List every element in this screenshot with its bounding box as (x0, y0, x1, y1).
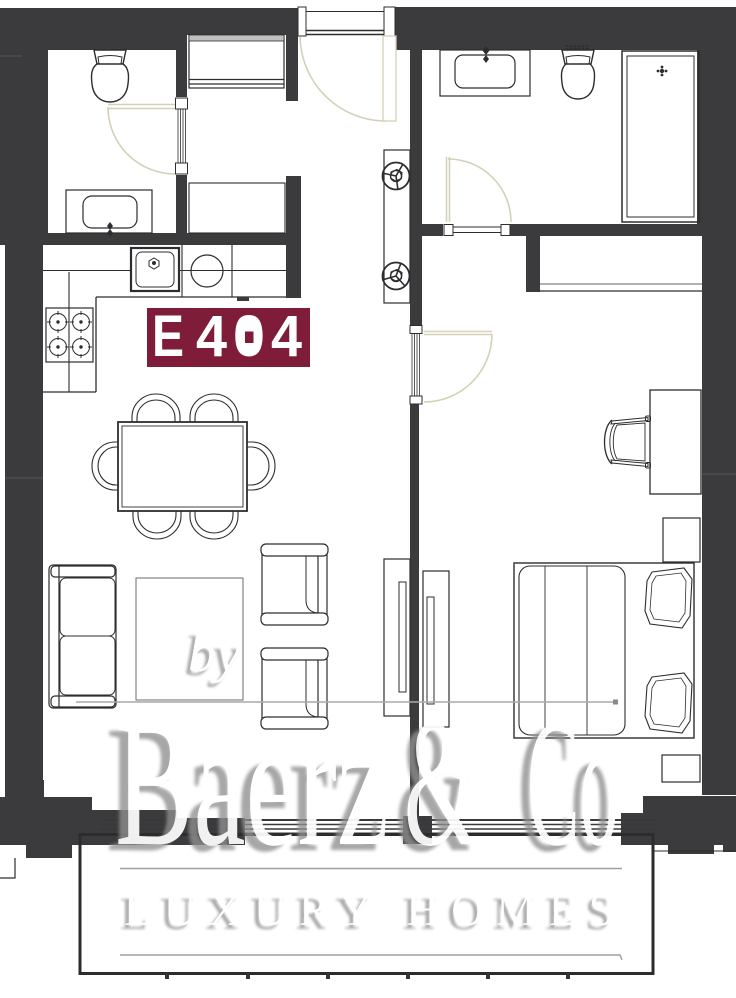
svg-text:4: 4 (196, 304, 227, 369)
svg-text:Baerz: Baerz (115, 683, 389, 884)
svg-text:&: & (404, 683, 479, 884)
svg-text:4: 4 (271, 304, 302, 369)
svg-text:Co: Co (527, 683, 619, 884)
svg-text:E: E (152, 304, 184, 369)
svg-text:by: by (188, 622, 241, 684)
